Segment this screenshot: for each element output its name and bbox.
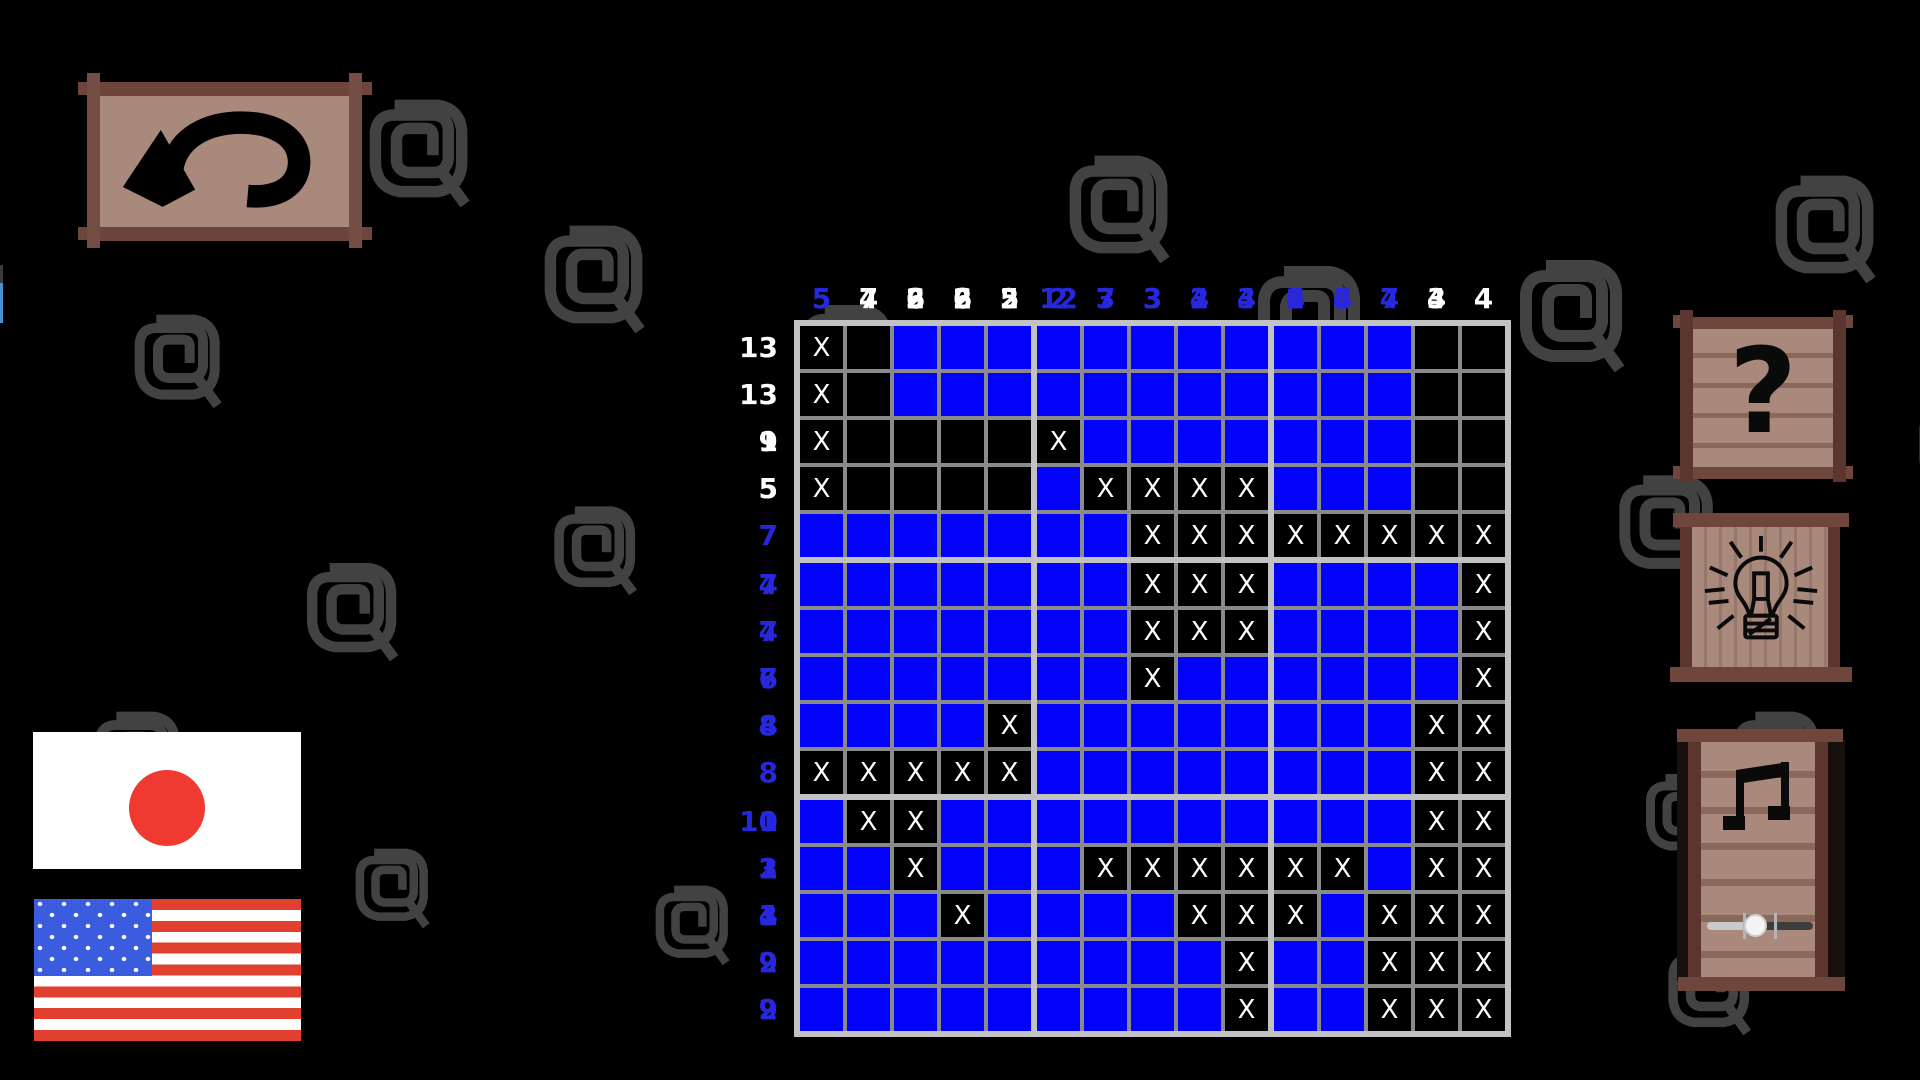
board-cell[interactable] (847, 514, 890, 557)
board-cell[interactable] (1178, 704, 1221, 747)
board-cell[interactable] (894, 326, 937, 369)
wood-plank-bottom (99, 227, 350, 241)
board-cell[interactable] (1178, 751, 1221, 794)
board-cell[interactable]: X (1462, 514, 1505, 557)
board-cell[interactable] (988, 467, 1031, 510)
board-cell[interactable] (988, 563, 1031, 606)
board-cell[interactable] (1037, 704, 1080, 747)
column-clue: 34 (1225, 124, 1268, 316)
board-cell[interactable] (1037, 800, 1080, 843)
column-clue-number: 2 (953, 282, 972, 316)
board-cell[interactable] (1084, 941, 1127, 984)
wood-post-right (349, 73, 362, 248)
board-cell[interactable] (894, 420, 937, 463)
board-cell[interactable]: X (894, 800, 937, 843)
board-cell[interactable]: X (1462, 704, 1505, 747)
column-clue: 43 (1415, 124, 1458, 316)
board-cell[interactable] (1274, 610, 1317, 653)
row-clue: 7 (520, 514, 786, 557)
wood-plank-top (99, 82, 350, 96)
board-cell[interactable] (1037, 514, 1080, 557)
board-cell[interactable] (1084, 326, 1127, 369)
board-cell[interactable] (1084, 894, 1127, 937)
board-cell[interactable] (800, 894, 843, 937)
board-cell[interactable] (1274, 467, 1317, 510)
board-cell[interactable] (847, 847, 890, 890)
board-cell[interactable] (988, 847, 1031, 890)
board-cell[interactable]: X (1178, 610, 1221, 653)
board-cell[interactable]: X (800, 467, 843, 510)
row-clue-number: 4 (759, 568, 778, 601)
board-cell[interactable]: X (1178, 847, 1221, 890)
board-cell[interactable] (1274, 563, 1317, 606)
board-cell[interactable] (1415, 326, 1458, 369)
board-cell[interactable] (847, 373, 890, 416)
board-cell[interactable] (988, 514, 1031, 557)
board-cell[interactable] (988, 373, 1031, 416)
board-cell[interactable] (1131, 326, 1174, 369)
board-cell[interactable] (1321, 657, 1364, 700)
wood-peg (78, 227, 87, 240)
column-clue: 74 (847, 124, 890, 316)
board-cell[interactable] (800, 514, 843, 557)
board-cell[interactable]: X (1462, 610, 1505, 653)
board-cell[interactable]: X (1178, 514, 1221, 557)
column-clue: 342 (1178, 124, 1221, 316)
board-cell[interactable]: X (1274, 514, 1317, 557)
row-clue-number: 1 (759, 899, 778, 932)
board-cell[interactable]: X (1415, 988, 1458, 1031)
row-clue-number: 2 (759, 946, 778, 979)
board-cell[interactable]: X (1368, 988, 1411, 1031)
board-cell[interactable]: X (1225, 988, 1268, 1031)
board-cell[interactable] (1274, 420, 1317, 463)
wood-post-left (1680, 527, 1692, 667)
board-cell[interactable]: X (1415, 800, 1458, 843)
wood-plank-bottom (1670, 667, 1852, 682)
board-cell[interactable] (1321, 373, 1364, 416)
board-cell[interactable]: X (1368, 514, 1411, 557)
column-clue: 212 (1037, 124, 1080, 316)
board-cell[interactable] (847, 610, 890, 653)
board-cell[interactable] (1084, 563, 1127, 606)
board-cell[interactable] (1368, 847, 1411, 890)
board-cell[interactable]: X (800, 326, 843, 369)
column-clue-number: 3 (1333, 282, 1352, 316)
board-cell[interactable] (1321, 326, 1364, 369)
row-clue: 19 (520, 420, 786, 463)
board-cell[interactable] (1415, 657, 1458, 700)
board-cell[interactable] (1462, 420, 1505, 463)
board-cell[interactable] (1415, 373, 1458, 416)
board-cell[interactable] (847, 326, 890, 369)
board-cell[interactable] (1037, 941, 1080, 984)
board-cell[interactable]: X (1084, 847, 1127, 890)
column-clue-number: 5 (1000, 282, 1019, 316)
wood-plank-bottom (1693, 467, 1833, 479)
board-cell[interactable] (800, 847, 843, 890)
wood-plank-bottom (1678, 977, 1845, 991)
board-cell[interactable] (894, 657, 937, 700)
board-cell[interactable]: X (800, 373, 843, 416)
language-english-button[interactable] (34, 899, 301, 1041)
board-cell[interactable] (1368, 373, 1411, 416)
board-cell[interactable]: X (1225, 941, 1268, 984)
puzzle-board: XXXXXXXXXXXXXXXXXXXXXXXXXXXXXXXXXXXXXXXX… (794, 320, 1511, 1037)
board-cell[interactable] (894, 704, 937, 747)
board-cell[interactable]: X (1225, 514, 1268, 557)
board-cell[interactable]: X (1131, 563, 1174, 606)
wood-plank-top (1673, 513, 1849, 527)
board-cell[interactable] (1131, 800, 1174, 843)
board-cell[interactable] (941, 563, 984, 606)
column-clue-number: 3 (1143, 282, 1162, 316)
column-clue: 2622 (941, 124, 984, 316)
board-cell[interactable] (1415, 610, 1458, 653)
board-cell[interactable] (894, 894, 937, 937)
board-cell[interactable] (1131, 420, 1174, 463)
board-cell[interactable]: X (1462, 988, 1505, 1031)
board-cell[interactable] (988, 657, 1031, 700)
board-cell[interactable] (1321, 610, 1364, 653)
board-cell[interactable] (800, 610, 843, 653)
board-cell[interactable]: X (1368, 894, 1411, 937)
hint-button[interactable] (1670, 508, 1852, 683)
board-cell[interactable]: X (988, 704, 1031, 747)
board-cell[interactable] (1225, 373, 1268, 416)
board-cell[interactable] (1321, 563, 1364, 606)
wood-post-left (1680, 310, 1693, 482)
row-clue: 76 (520, 657, 786, 700)
board-cell[interactable] (1321, 941, 1364, 984)
row-clue: 74 (520, 610, 786, 653)
row-clue: 55 (520, 467, 786, 510)
board-cell[interactable] (847, 657, 890, 700)
board-cell[interactable] (1178, 420, 1221, 463)
board-cell[interactable]: X (1462, 563, 1505, 606)
board-cell[interactable] (1274, 704, 1317, 747)
board-cell[interactable] (1131, 941, 1174, 984)
row-clue-number: 5 (759, 472, 778, 505)
board-cell[interactable] (1037, 751, 1080, 794)
wood-post-right (1833, 310, 1846, 482)
row-clue: 8 (520, 751, 786, 794)
board-cell[interactable] (894, 941, 937, 984)
board-cell[interactable] (1037, 894, 1080, 937)
board-cell[interactable] (1178, 326, 1221, 369)
row-clue: 92 (520, 941, 786, 984)
board-cell[interactable] (1462, 326, 1505, 369)
board-cell[interactable] (1274, 988, 1317, 1031)
board-cell[interactable]: X (1462, 751, 1505, 794)
column-clue-number: 3 (1427, 282, 1446, 316)
board-cell[interactable] (1225, 420, 1268, 463)
board-cell[interactable] (941, 800, 984, 843)
board-cell[interactable] (1368, 751, 1411, 794)
board-cell[interactable] (988, 800, 1031, 843)
board-cell[interactable] (1321, 704, 1364, 747)
row-clue-number: 1 (759, 852, 778, 885)
board-cell[interactable]: X (1225, 467, 1268, 510)
board-cell[interactable]: X (1178, 563, 1221, 606)
wood-peg (1673, 466, 1680, 479)
board-cell[interactable]: X (1415, 514, 1458, 557)
board-cell[interactable] (1415, 563, 1458, 606)
board-cell[interactable] (1037, 563, 1080, 606)
undo-arrow-icon (112, 102, 338, 224)
board-cell[interactable]: X (800, 420, 843, 463)
board-cell[interactable]: X (1415, 941, 1458, 984)
board-cell[interactable] (988, 941, 1031, 984)
board-cell[interactable] (1274, 373, 1317, 416)
board-cell[interactable] (1178, 988, 1221, 1031)
wood-post-right (1815, 742, 1828, 977)
board-cell[interactable] (941, 420, 984, 463)
board-cell[interactable] (1274, 800, 1317, 843)
volume-slider-knob[interactable] (1744, 914, 1767, 937)
board-cell[interactable] (988, 988, 1031, 1031)
board-cell[interactable]: X (1368, 941, 1411, 984)
lightbulb-icon (1697, 530, 1825, 662)
row-clue: 341 (520, 894, 786, 937)
column-clue-number: 4 (859, 282, 878, 316)
board-cell[interactable] (1131, 751, 1174, 794)
board-cell[interactable] (1225, 657, 1268, 700)
board-cell[interactable] (894, 988, 937, 1031)
board-cell[interactable] (1037, 847, 1080, 890)
column-clue: 463 (1321, 124, 1364, 316)
board-cell[interactable] (941, 988, 984, 1031)
board-cell[interactable] (988, 894, 1031, 937)
board-cell[interactable]: X (1462, 800, 1505, 843)
board-cell[interactable]: X (941, 894, 984, 937)
column-clue: 55 (800, 124, 843, 316)
board-cell[interactable]: X (1178, 894, 1221, 937)
board-cell[interactable] (1462, 373, 1505, 416)
board-cell[interactable] (941, 467, 984, 510)
board-cell[interactable]: X (1321, 847, 1364, 890)
board-cell[interactable]: X (1462, 657, 1505, 700)
board-cell[interactable] (847, 467, 890, 510)
board-cell[interactable] (988, 420, 1031, 463)
board-cell[interactable] (847, 988, 890, 1031)
board-cell[interactable] (1178, 800, 1221, 843)
board-cell[interactable] (1037, 610, 1080, 653)
wood-peg (1846, 466, 1853, 479)
board-cell[interactable] (1225, 326, 1268, 369)
board-cell[interactable] (800, 988, 843, 1031)
screen-edge-artifact (0, 265, 3, 283)
board-cell[interactable]: X (1415, 894, 1458, 937)
board-cell[interactable] (988, 326, 1031, 369)
board-cell[interactable]: X (1131, 847, 1174, 890)
board-cell[interactable] (894, 514, 937, 557)
board-cell[interactable]: X (941, 751, 984, 794)
board-cell[interactable] (800, 563, 843, 606)
row-clue-number: 13 (739, 378, 778, 411)
board-cell[interactable]: X (847, 800, 890, 843)
board-cell[interactable] (1368, 704, 1411, 747)
music-box[interactable] (1677, 729, 1845, 994)
board-cell[interactable] (941, 704, 984, 747)
board-cell[interactable] (1415, 467, 1458, 510)
board-cell[interactable] (894, 467, 937, 510)
board-cell[interactable] (800, 941, 843, 984)
board-cell[interactable] (1084, 704, 1127, 747)
board-cell[interactable] (1084, 373, 1127, 416)
board-cell[interactable] (1037, 326, 1080, 369)
board-cell[interactable] (800, 657, 843, 700)
board-cell[interactable] (1084, 988, 1127, 1031)
board-cell[interactable] (894, 373, 937, 416)
board-cell[interactable] (1274, 751, 1317, 794)
board-cell[interactable]: X (1131, 610, 1174, 653)
board-cell[interactable]: X (1321, 514, 1364, 557)
board-cell[interactable] (1368, 467, 1411, 510)
nonogram-game-screen: 557426326222552123733333423446246347434 … (0, 0, 1920, 1080)
board-cell[interactable]: X (1462, 941, 1505, 984)
wood-post-left (1688, 742, 1701, 977)
screen-edge-artifact (0, 283, 3, 323)
board-cell[interactable] (1084, 420, 1127, 463)
board-cell[interactable]: X (988, 751, 1031, 794)
board-cell[interactable] (1037, 373, 1080, 416)
board-cell[interactable] (894, 610, 937, 653)
board-cell[interactable]: X (894, 751, 937, 794)
board-cell[interactable] (1321, 420, 1364, 463)
help-button[interactable]: ? (1673, 310, 1853, 482)
board-cell[interactable] (1037, 657, 1080, 700)
board-cell[interactable]: X (1037, 420, 1080, 463)
board-cell[interactable]: X (1084, 467, 1127, 510)
board-cell[interactable] (894, 563, 937, 606)
grid-major-line (794, 1031, 1511, 1037)
board-cell[interactable] (1415, 420, 1458, 463)
board-cell[interactable] (941, 326, 984, 369)
board-cell[interactable] (1131, 988, 1174, 1031)
board-cell[interactable]: X (1415, 704, 1458, 747)
board-cell[interactable] (1131, 704, 1174, 747)
board-cell[interactable]: X (1462, 847, 1505, 890)
board-cell[interactable] (1084, 514, 1127, 557)
board-cell[interactable]: X (1415, 847, 1458, 890)
board-cell[interactable] (1225, 704, 1268, 747)
board-cell[interactable] (1178, 941, 1221, 984)
board-cell[interactable]: X (1274, 847, 1317, 890)
undo-button[interactable] (78, 66, 372, 252)
board-cell[interactable] (941, 610, 984, 653)
board-cell[interactable] (1321, 894, 1364, 937)
column-clue-number: 12 (1039, 282, 1078, 316)
board-cell[interactable] (941, 847, 984, 890)
board-cell[interactable] (1178, 657, 1221, 700)
row-clue-number: 8 (759, 709, 778, 742)
board-cell[interactable] (847, 563, 890, 606)
column-clue-number: 2 (1190, 282, 1209, 316)
board-cell[interactable]: X (1225, 563, 1268, 606)
board-cell[interactable] (1368, 800, 1411, 843)
board-cell[interactable] (1131, 894, 1174, 937)
column-clue-number: 3 (906, 282, 925, 316)
board-cell[interactable]: X (800, 751, 843, 794)
board-cell[interactable] (988, 610, 1031, 653)
board-cell[interactable] (1321, 800, 1364, 843)
board-cell[interactable] (1131, 373, 1174, 416)
board-cell[interactable] (1368, 420, 1411, 463)
board-cell[interactable] (941, 941, 984, 984)
row-clue-number: 8 (759, 756, 778, 789)
wood-post-right (1828, 527, 1840, 667)
board-cell[interactable]: X (1274, 894, 1317, 937)
board-cell[interactable] (941, 373, 984, 416)
board-cell[interactable] (1084, 610, 1127, 653)
board-cell[interactable] (941, 657, 984, 700)
board-cell[interactable] (847, 941, 890, 984)
board-cell[interactable] (800, 704, 843, 747)
board-cell[interactable] (1178, 373, 1221, 416)
board-cell[interactable] (941, 514, 984, 557)
music-note-icon (1713, 756, 1803, 846)
board-cell[interactable] (847, 894, 890, 937)
board-cell[interactable]: X (1225, 847, 1268, 890)
question-mark-icon: ? (1693, 318, 1833, 463)
board-cell[interactable] (1321, 751, 1364, 794)
row-clue: 231 (520, 847, 786, 890)
board-cell[interactable] (1274, 941, 1317, 984)
board-cell[interactable]: X (894, 847, 937, 890)
japan-flag-icon (129, 770, 205, 846)
board-cell[interactable] (1084, 751, 1127, 794)
board-cell[interactable]: X (1131, 657, 1174, 700)
column-clue: 462 (1274, 124, 1317, 316)
board-cell[interactable] (1368, 563, 1411, 606)
board-cell[interactable] (847, 420, 890, 463)
row-clue-number: 13 (739, 331, 778, 364)
board-cell[interactable] (1321, 467, 1364, 510)
row-clue-number: 7 (759, 519, 778, 552)
board-cell[interactable] (800, 800, 843, 843)
board-cell[interactable] (1084, 800, 1127, 843)
board-cell[interactable] (1225, 800, 1268, 843)
board-cell[interactable]: X (1225, 610, 1268, 653)
board-cell[interactable] (1037, 988, 1080, 1031)
row-clue-number: 6 (759, 662, 778, 695)
board-cell[interactable] (1462, 467, 1505, 510)
wood-peg (1846, 315, 1853, 328)
board-cell[interactable] (1274, 326, 1317, 369)
grid-major-line (1505, 320, 1511, 1037)
board-cell[interactable] (847, 704, 890, 747)
board-cell[interactable] (1037, 467, 1080, 510)
board-cell[interactable] (1274, 657, 1317, 700)
board-cell[interactable] (1084, 657, 1127, 700)
board-cell[interactable] (1321, 988, 1364, 1031)
board-cell[interactable]: X (847, 751, 890, 794)
row-clue: 92 (520, 988, 786, 1031)
language-japanese-button[interactable] (33, 732, 301, 869)
board-cell[interactable]: X (1225, 894, 1268, 937)
board-cell[interactable]: X (1131, 514, 1174, 557)
board-cell[interactable] (1368, 610, 1411, 653)
board-cell[interactable]: X (1178, 467, 1221, 510)
board-cell[interactable]: X (1462, 894, 1505, 937)
row-clue: 13 (520, 326, 786, 369)
board-cell[interactable] (1368, 657, 1411, 700)
board-cell[interactable]: X (1131, 467, 1174, 510)
board-cell[interactable] (1368, 326, 1411, 369)
board-cell[interactable]: X (1415, 751, 1458, 794)
board-cell[interactable] (1225, 751, 1268, 794)
